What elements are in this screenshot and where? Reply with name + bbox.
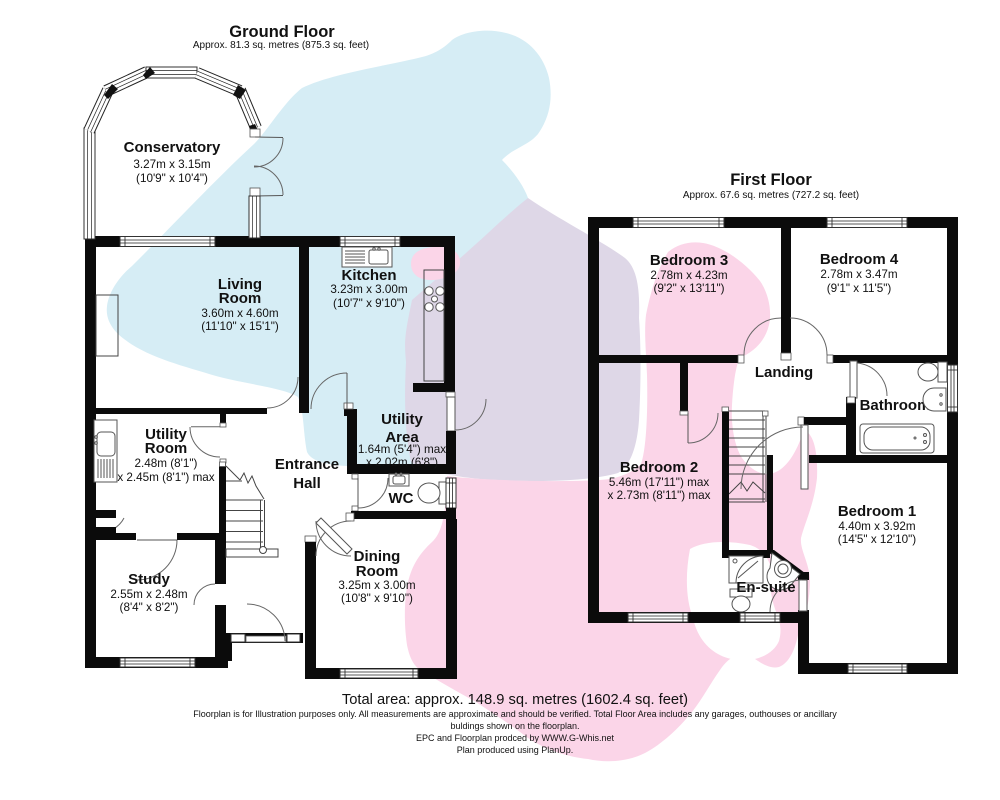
svg-text:Bathroom: Bathroom (860, 397, 931, 414)
svg-text:2.78m x 3.47m: 2.78m x 3.47m (820, 268, 897, 281)
svg-text:2.55m x 2.48m: 2.55m x 2.48m (110, 588, 187, 601)
svg-text:EPC and Floorplan prodced by W: EPC and Floorplan prodced by WWW.G-Whis.… (416, 733, 615, 743)
svg-text:Approx. 67.6 sq. metres (727.2: Approx. 67.6 sq. metres (727.2 sq. feet) (683, 190, 859, 201)
svg-text:Room: Room (356, 563, 399, 580)
svg-text:Hall: Hall (293, 475, 321, 492)
svg-text:(10'7" x 9'10"): (10'7" x 9'10") (333, 297, 405, 310)
svg-text:En-suite: En-suite (736, 579, 795, 596)
svg-text:4.40m x 3.92m: 4.40m x 3.92m (838, 520, 915, 533)
svg-text:Approx. 81.3 sq. metres (875.3: Approx. 81.3 sq. metres (875.3 sq. feet) (193, 40, 369, 51)
svg-text:Bedroom 2: Bedroom 2 (620, 459, 698, 476)
svg-text:(10'8" x 9'10"): (10'8" x 9'10") (341, 592, 413, 605)
svg-text:Total area: approx. 148.9 sq.: Total area: approx. 148.9 sq. metres (16… (342, 692, 688, 708)
svg-text:2.48m (8'1"): 2.48m (8'1") (135, 457, 198, 470)
svg-text:Study: Study (128, 571, 170, 588)
svg-text:3.23m x 3.00m: 3.23m x 3.00m (330, 283, 407, 296)
svg-text:buldings shown on the floorpla: buldings shown on the floorplan. (450, 721, 579, 731)
svg-text:(9'2" x 13'11"): (9'2" x 13'11") (653, 282, 724, 295)
svg-text:Floorplan is for Illustration: Floorplan is for Illustration purposes o… (193, 709, 837, 719)
svg-text:WC: WC (389, 490, 414, 507)
svg-text:Landing: Landing (755, 364, 813, 381)
svg-text:Room: Room (219, 290, 262, 307)
svg-text:Room: Room (145, 440, 188, 457)
svg-text:5.46m (17'11") max: 5.46m (17'11") max (609, 476, 710, 489)
svg-text:(10'9" x 10'4"): (10'9" x 10'4") (136, 172, 208, 185)
svg-text:Kitchen: Kitchen (341, 267, 396, 284)
svg-text:x 2.45m (8'1") max: x 2.45m (8'1") max (117, 471, 214, 484)
svg-text:Entrance: Entrance (275, 456, 339, 473)
svg-text:3.25m x 3.00m: 3.25m x 3.00m (338, 579, 415, 592)
svg-text:Bedroom 1: Bedroom 1 (838, 503, 916, 520)
svg-text:2.78m x 4.23m: 2.78m x 4.23m (650, 269, 727, 282)
svg-text:Ground Floor: Ground Floor (229, 23, 335, 41)
svg-text:x 2.02m (6'8"): x 2.02m (6'8") (366, 456, 438, 469)
svg-text:(9'1" x 11'5"): (9'1" x 11'5") (827, 282, 892, 295)
svg-text:Plan produced using PlanUp.: Plan produced using PlanUp. (457, 745, 574, 755)
svg-text:First Floor: First Floor (730, 171, 812, 189)
svg-text:Conservatory: Conservatory (124, 139, 221, 156)
svg-text:(11'10" x 15'1"): (11'10" x 15'1") (201, 320, 279, 333)
svg-text:3.27m x 3.15m: 3.27m x 3.15m (133, 158, 210, 171)
svg-text:(14'5" x 12'10"): (14'5" x 12'10") (838, 533, 916, 546)
svg-text:Utility: Utility (381, 411, 423, 428)
svg-text:x 2.73m (8'11") max: x 2.73m (8'11") max (608, 489, 711, 502)
svg-text:Bedroom 3: Bedroom 3 (650, 252, 728, 269)
svg-text:(8'4" x 8'2"): (8'4" x 8'2") (120, 601, 179, 614)
svg-text:Bedroom 4: Bedroom 4 (820, 251, 899, 268)
svg-text:3.60m x 4.60m: 3.60m x 4.60m (201, 307, 278, 320)
svg-text:1.64m (5'4") max: 1.64m (5'4") max (358, 443, 446, 456)
